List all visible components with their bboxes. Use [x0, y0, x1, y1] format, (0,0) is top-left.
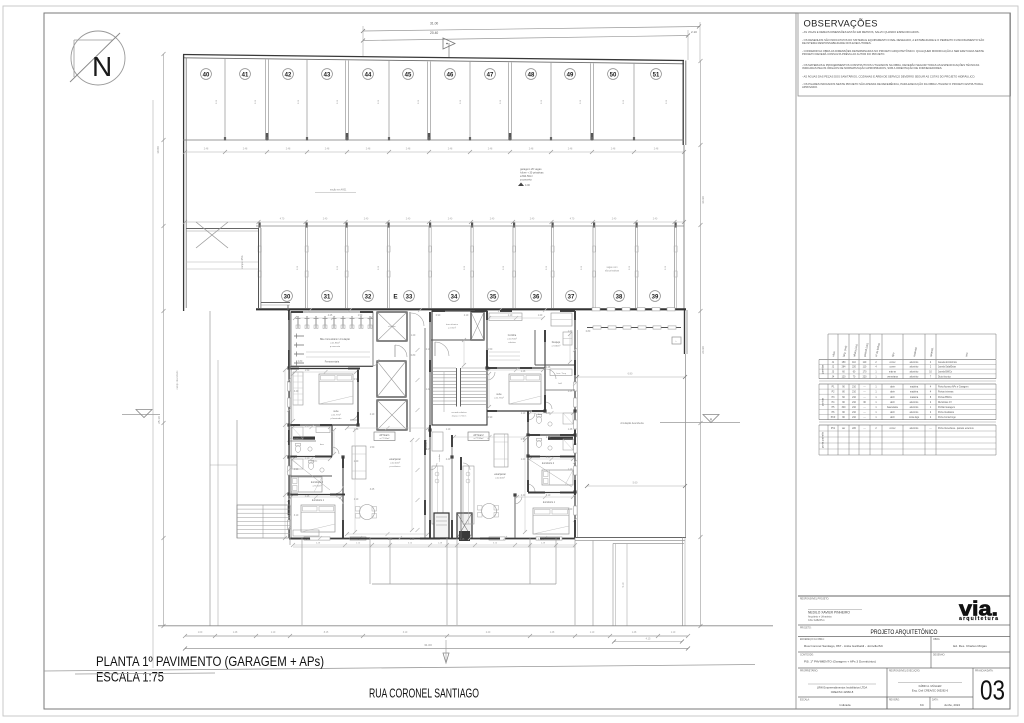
svg-text:4.70: 4.70	[280, 219, 285, 221]
svg-text:a:11.77m²: a:11.77m²	[331, 414, 341, 417]
svg-text:DATA:: DATA:	[932, 699, 939, 702]
svg-text:3.10: 3.10	[388, 539, 393, 541]
svg-text:Bike Comunitário / circulação: Bike Comunitário / circulação	[320, 338, 350, 341]
svg-text:2.48: 2.48	[286, 149, 291, 151]
svg-text:estar/jantar: estar/jantar	[389, 458, 401, 461]
svg-text:abrir: abrir	[890, 386, 895, 389]
svg-text:2.10: 2.10	[691, 30, 697, 34]
svg-text:---: ---	[929, 428, 932, 430]
svg-text:36: 36	[533, 294, 540, 300]
svg-text:2.48: 2.48	[488, 149, 493, 151]
svg-text:0.80: 0.80	[298, 361, 303, 363]
svg-text:PROJETO ARQUITETÔNICO: PROJETO ARQUITETÔNICO	[871, 629, 938, 636]
svg-text:2.40: 2.40	[568, 509, 573, 511]
svg-text:---: ---	[863, 387, 866, 389]
svg-text:elevador: elevador	[388, 326, 396, 328]
svg-text:2.48: 2.48	[325, 149, 330, 151]
svg-text:0.80: 0.80	[411, 355, 416, 357]
svg-text:estar/jantar: estar/jantar	[494, 473, 506, 476]
svg-text:a:22.40m²: a:22.40m²	[495, 477, 505, 480]
svg-text:30: 30	[284, 294, 291, 300]
svg-text:KC: KC	[920, 703, 924, 707]
svg-text:32: 32	[365, 294, 372, 300]
svg-text:1.20: 1.20	[294, 439, 299, 441]
svg-text:dormitório 2: dormitório 2	[311, 481, 324, 484]
svg-text:1.10: 1.10	[354, 499, 359, 501]
svg-text:2.40: 2.40	[612, 219, 617, 221]
svg-text:---: ---	[863, 412, 866, 414]
svg-text:2.48: 2.48	[611, 149, 616, 151]
svg-text:51: 51	[653, 72, 660, 78]
svg-text:---: ---	[863, 397, 866, 399]
svg-text:2.40: 2.40	[653, 219, 658, 221]
svg-text:1.48: 1.48	[460, 539, 465, 541]
svg-text:0.80: 0.80	[586, 331, 591, 333]
svg-text:2.48: 2.48	[448, 149, 453, 151]
svg-text:33: 33	[406, 294, 413, 300]
svg-text:1.10: 1.10	[521, 413, 526, 415]
svg-text:1.20: 1.20	[568, 331, 573, 333]
svg-text:correr: correr	[890, 427, 896, 430]
svg-text:35: 35	[490, 294, 497, 300]
svg-text:garagem 26 vagas: garagem 26 vagas	[520, 167, 542, 171]
svg-text:Janela Sala/Estar: Janela Sala/Estar	[938, 366, 956, 369]
svg-text:a:11.75m²: a:11.75m²	[494, 397, 504, 400]
svg-text:1.48: 1.48	[632, 632, 637, 634]
svg-text:PV1: PV1	[831, 428, 836, 430]
svg-text:40: 40	[203, 72, 210, 78]
svg-text:2.48: 2.48	[529, 149, 534, 151]
svg-text:1.50: 1.50	[370, 447, 375, 449]
svg-text:p:laminado: p:laminado	[331, 418, 342, 420]
svg-text:Ed. Res. Charles Mirgas: Ed. Res. Charles Mirgas	[953, 644, 987, 648]
svg-text:0.90: 0.90	[436, 315, 441, 317]
svg-text:1.20: 1.20	[410, 539, 415, 541]
svg-text:4.25: 4.25	[426, 449, 431, 451]
svg-text:a:22.40m²: a:22.40m²	[390, 462, 400, 465]
svg-text:2.10: 2.10	[464, 315, 469, 317]
svg-text:1.10: 1.10	[546, 437, 551, 439]
svg-text:1.10: 1.10	[271, 632, 276, 634]
svg-text:suíte: suíte	[333, 410, 339, 413]
svg-text:ESCALA 1:75: ESCALA 1:75	[96, 669, 164, 685]
svg-text:vagas com: vagas com	[606, 267, 617, 269]
svg-text:arquitetura: arquitetura	[959, 616, 998, 622]
svg-text:RESPONSÁVEL PROJETO:: RESPONSÁVEL PROJETO:	[800, 598, 829, 601]
svg-text:1.00: 1.00	[198, 632, 203, 634]
svg-text:3.40: 3.40	[294, 391, 299, 393]
svg-text:6.80: 6.80	[628, 373, 633, 376]
svg-text:madeira: madeira	[910, 391, 919, 394]
svg-text:2.25: 2.25	[568, 391, 573, 393]
svg-text:31: 31	[324, 294, 331, 300]
svg-text:---: ---	[863, 407, 866, 409]
svg-text:2.48: 2.48	[204, 149, 209, 151]
svg-text:PROJETO:: PROJETO:	[800, 628, 812, 630]
svg-text:máx-ar: máx-ar	[889, 371, 896, 374]
svg-text:porta painéis: porta painéis	[821, 431, 825, 448]
svg-text:03: 03	[980, 675, 1005, 706]
svg-text:2.48: 2.48	[654, 149, 659, 151]
svg-text:abrir: abrir	[890, 396, 895, 399]
svg-text:1.50: 1.50	[305, 370, 310, 372]
svg-text:1.10: 1.10	[508, 315, 513, 317]
svg-text:1.10: 1.10	[446, 429, 451, 431]
svg-text:AP final 1: AP final 1	[379, 434, 390, 437]
svg-text:alumínio: alumínio	[910, 367, 919, 369]
svg-text:Indicada: Indicada	[840, 703, 851, 707]
svg-text:dormitório 1: dormitório 1	[312, 499, 325, 502]
svg-text:2.40: 2.40	[530, 219, 535, 221]
svg-text:RUA CORONEL SANTIAGO: RUA CORONEL SANTIAGO	[369, 686, 479, 701]
svg-text:Janela dormitórios: Janela dormitórios	[938, 361, 958, 364]
svg-text:alumínio: alumínio	[910, 376, 919, 378]
svg-text:p:concreto: p:concreto	[520, 179, 532, 182]
svg-text:alumínio: alumínio	[910, 412, 919, 414]
svg-text:ESCALA:: ESCALA:	[800, 699, 810, 702]
svg-text:1.48: 1.48	[426, 389, 431, 391]
svg-text:alumínio: alumínio	[910, 428, 919, 430]
svg-text:25.10: 25.10	[157, 416, 161, 424]
svg-text:Junho, 2024: Junho, 2024	[944, 703, 960, 707]
svg-text:circulação descoberta: circulação descoberta	[620, 422, 644, 425]
svg-text:1.48: 1.48	[233, 632, 238, 634]
svg-text:31.00: 31.00	[424, 643, 432, 647]
svg-text:janelas: janelas	[821, 364, 825, 374]
svg-text:suíte: suíte	[496, 393, 502, 396]
svg-text:1.10: 1.10	[568, 469, 573, 471]
svg-text:CAU A48235-1: CAU A48235-1	[808, 619, 825, 622]
svg-text:2.48: 2.48	[366, 149, 371, 151]
svg-text:0.90: 0.90	[546, 457, 551, 459]
svg-text:PCF: PCF	[831, 417, 836, 419]
svg-text:corta-fogo: corta-fogo	[909, 416, 920, 419]
svg-text:alumínio: alumínio	[910, 407, 919, 409]
svg-text:1.10: 1.10	[590, 632, 595, 634]
svg-text:0.90: 0.90	[294, 469, 299, 471]
svg-text:seção mn.4001: seção mn.4001	[330, 189, 347, 192]
svg-text:abrir: abrir	[890, 411, 895, 414]
svg-text:2.48: 2.48	[568, 149, 573, 151]
svg-text:10.80: 10.80	[156, 146, 160, 154]
svg-text:---: ---	[863, 428, 866, 430]
svg-text:campo descoberto: campo descoberto	[176, 370, 179, 390]
svg-text:43: 43	[324, 72, 331, 78]
svg-text:ENDEREÇO DA OBRA:: ENDEREÇO DA OBRA:	[800, 638, 825, 641]
svg-text:1.50: 1.50	[358, 315, 363, 317]
svg-text:RESPONSÁVEL EXECUÇÃO:: RESPONSÁVEL EXECUÇÃO:	[889, 670, 921, 673]
svg-text:39: 39	[652, 294, 659, 300]
svg-text:alumínio: alumínio	[910, 372, 919, 374]
svg-text:2.40: 2.40	[364, 219, 369, 221]
svg-text:Porta Acesso APs e Garagem: Porta Acesso APs e Garagem	[938, 386, 968, 389]
svg-text:2.40: 2.40	[323, 219, 328, 221]
svg-text:2.40: 2.40	[446, 459, 451, 461]
svg-text:hall: hall	[558, 383, 562, 385]
svg-text:var: var	[842, 427, 845, 430]
svg-text:NEDILO XAVIER PINHEIRO: NEDILO XAVIER PINHEIRO	[808, 611, 850, 615]
svg-text:2.40: 2.40	[406, 219, 411, 221]
svg-text:a:5.80m²: a:5.80m²	[552, 345, 561, 348]
svg-text:OBSERVAÇÕES: OBSERVAÇÕES	[804, 18, 878, 29]
svg-text:CREA/SC 42960-8: CREA/SC 42960-8	[831, 690, 854, 694]
svg-text:PRANCHA/DATA:: PRANCHA/DATA:	[975, 670, 994, 673]
svg-text:APROVADO.: APROVADO.	[802, 85, 818, 89]
svg-text:2.40: 2.40	[354, 461, 359, 463]
svg-text:PROPRIETÁRIO:: PROPRIETÁRIO:	[800, 670, 818, 673]
svg-text:50: 50	[610, 72, 617, 78]
svg-text:2.48: 2.48	[243, 149, 248, 151]
svg-text:abrir: abrir	[890, 391, 895, 394]
svg-text:46: 46	[447, 72, 454, 78]
svg-text:E: E	[393, 294, 398, 301]
svg-text:1.48: 1.48	[546, 367, 551, 369]
svg-text:Janela BWCs: Janela BWCs	[938, 372, 953, 374]
svg-text:a:21.96m²: a:21.96m²	[330, 342, 340, 345]
svg-text:47: 47	[487, 72, 494, 78]
svg-text:degrau: 17,8cm: degrau: 17,8cm	[452, 415, 467, 418]
svg-text:DE INTEIRA RESPONSABILIDADE DO: DE INTEIRA RESPONSABILIDADE DOS EXECUTOR…	[802, 41, 872, 45]
svg-text:OBRA:: OBRA:	[933, 638, 941, 641]
svg-text:a:10.70m²: a:10.70m²	[507, 338, 517, 341]
svg-text:Porta Vestiários: Porta Vestiários	[938, 411, 955, 414]
svg-text:5.60: 5.60	[633, 482, 638, 485]
svg-text:Despejo: Despejo	[552, 342, 561, 344]
svg-text:Porta Corta Fogo: Porta Corta Fogo	[938, 416, 956, 419]
svg-text:p:cerâmico: p:cerâmico	[390, 465, 401, 468]
svg-text:Divisórias 4 fl: Divisórias 4 fl	[938, 401, 952, 404]
svg-text:a:9.15m²: a:9.15m²	[313, 485, 322, 488]
svg-text:2.40: 2.40	[486, 632, 491, 634]
svg-text:24.90: 24.90	[701, 346, 705, 354]
svg-text:dormitório 2: dormitório 2	[542, 462, 555, 465]
svg-text:Rua Coronel Santiago, 867 - An: Rua Coronel Santiago, 867 - Anita Gariba…	[804, 644, 884, 648]
svg-text:42: 42	[285, 72, 292, 78]
svg-text:45: 45	[405, 72, 412, 78]
svg-text:Portas BWCs: Portas BWCs	[938, 396, 953, 399]
svg-text:3.10: 3.10	[294, 515, 299, 517]
svg-text:Lava / Tanq: Lava / Tanq	[556, 373, 566, 375]
svg-text:portas: portas	[821, 397, 825, 405]
svg-text:AP final 2: AP final 2	[473, 434, 484, 437]
svg-text:3.10: 3.10	[403, 632, 408, 634]
svg-text:4.15: 4.15	[646, 638, 651, 641]
svg-text:coletiva: coletiva	[508, 341, 516, 344]
svg-text:p:concreto: p:concreto	[330, 345, 341, 348]
svg-text:1.20: 1.20	[411, 335, 416, 337]
svg-text:44: 44	[365, 72, 372, 78]
svg-text:Portão Garagem: Portão Garagem	[938, 406, 955, 409]
svg-text:N: N	[92, 51, 112, 82]
svg-text:a:2.90m²: a:2.90m²	[448, 327, 457, 330]
svg-text:3.25: 3.25	[370, 489, 375, 491]
svg-text:basculante: basculante	[887, 406, 899, 409]
svg-text:2.48: 2.48	[406, 149, 411, 151]
svg-text:lavabo: lavabo	[311, 461, 318, 463]
svg-text:1.50: 1.50	[488, 349, 493, 351]
svg-text:41: 41	[242, 72, 249, 78]
svg-text:2.48: 2.48	[521, 371, 526, 373]
svg-text:4.70: 4.70	[570, 219, 575, 221]
svg-text:8.15: 8.15	[324, 632, 329, 634]
svg-text:48: 48	[528, 72, 535, 78]
svg-text:Eng. Civil CREA/SC 065262-6: Eng. Civil CREA/SC 065262-6	[912, 689, 949, 693]
svg-text:abrir: abrir	[890, 416, 895, 419]
svg-text:---: ---	[863, 392, 866, 394]
svg-text:2.40: 2.40	[448, 219, 453, 221]
svg-text:REVISÃO:: REVISÃO:	[889, 699, 900, 702]
svg-text:madeira: madeira	[910, 396, 919, 399]
svg-text:31.00: 31.00	[430, 22, 438, 26]
svg-text:4.00: 4.00	[525, 184, 530, 187]
svg-text:20.40: 20.40	[430, 31, 438, 35]
svg-text:5.10: 5.10	[622, 582, 625, 587]
svg-text:área técnica: área técnica	[446, 323, 459, 326]
svg-text:1.20: 1.20	[538, 315, 543, 317]
svg-text:alumínio: alumínio	[910, 362, 919, 364]
svg-text:1.48: 1.48	[568, 429, 573, 431]
svg-text:2.10: 2.10	[370, 414, 375, 416]
svg-text:LRW Empreendimentos Imobiliári: LRW Empreendimentos Imobiliários LTDA	[817, 686, 867, 690]
svg-text:37: 37	[568, 294, 575, 300]
svg-text:Portas internas: Portas internas	[938, 391, 954, 394]
svg-text:Porta Veneziana - painéis exte: Porta Veneziana - painéis externos	[938, 427, 974, 430]
svg-text:escada coletiva: escada coletiva	[451, 411, 467, 414]
svg-text:0.90: 0.90	[488, 417, 493, 419]
svg-text:Cozinha: Cozinha	[508, 335, 517, 337]
svg-text:madeira: madeira	[910, 386, 919, 389]
svg-text:49: 49	[567, 72, 574, 78]
svg-text:1.48: 1.48	[550, 632, 555, 634]
svg-text:4.25: 4.25	[328, 315, 333, 317]
svg-text:alumínio: alumínio	[910, 402, 919, 404]
svg-text:P.B. 1º PAVIMENTO (Garagem + A: P.B. 1º PAVIMENTO (Garagem + APs 3 Dormi…	[804, 660, 876, 664]
svg-text:a:77.18m²: a:77.18m²	[474, 437, 484, 440]
svg-text:CONTEÚDO:: CONTEÚDO:	[800, 654, 814, 657]
svg-text:PLANTA 1º PAVIMENTO (GARAGEM +: PLANTA 1º PAVIMENTO (GARAGEM + APs)	[96, 653, 324, 669]
svg-text:cozinha: cozinha	[439, 453, 441, 461]
svg-text:não privativas: não privativas	[605, 270, 620, 273]
svg-text:a:77.18m²: a:77.18m²	[380, 437, 390, 440]
svg-text:veneziana: veneziana	[887, 376, 898, 378]
svg-text:correr: correr	[890, 361, 896, 364]
svg-text:dormitório 1: dormitório 1	[543, 501, 556, 504]
svg-text:34.90: 34.90	[701, 196, 705, 204]
svg-text:Ferramentaria: Ferramentaria	[325, 361, 340, 364]
svg-text:38: 38	[616, 294, 623, 300]
svg-text:h: h	[675, 341, 676, 343]
svg-text:---: ---	[863, 417, 866, 419]
svg-text:FÁBIO A. MÜLLER: FÁBIO A. MÜLLER	[919, 684, 942, 688]
svg-text:34: 34	[451, 294, 458, 300]
svg-text:abrir: abrir	[890, 401, 895, 404]
svg-text:DESENHO:: DESENHO:	[933, 655, 945, 657]
svg-text:Duto técnico: Duto técnico	[938, 375, 951, 378]
svg-text:1.10: 1.10	[671, 632, 676, 634]
svg-text:correr: correr	[890, 366, 896, 369]
svg-text:2.10: 2.10	[426, 349, 431, 351]
svg-text:2.40: 2.40	[490, 219, 495, 221]
